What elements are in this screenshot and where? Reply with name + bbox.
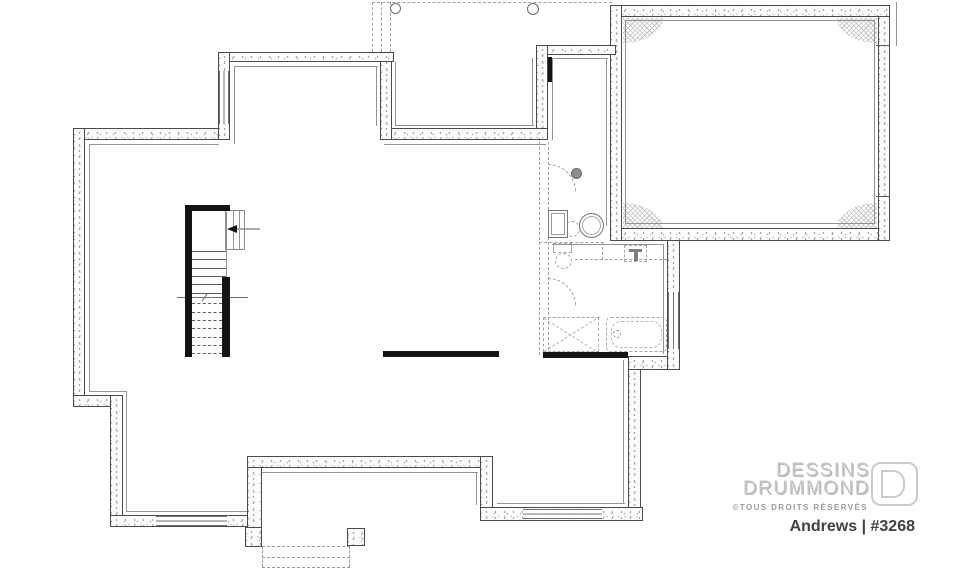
deck-outline-dashed (372, 2, 373, 52)
finish-line (234, 66, 378, 67)
drummond-logo-icon (871, 462, 918, 506)
stair-tread-hidden (192, 337, 222, 338)
future-partition (575, 259, 667, 260)
future-toilet-bowl (555, 253, 572, 269)
stair-wall-top (185, 205, 230, 211)
water-heater (579, 213, 604, 238)
foundation-wall-top-left-top-h (218, 52, 394, 62)
stair-tread-hidden (192, 345, 222, 346)
window-upper-left (219, 71, 229, 124)
deck-outline-dashed (372, 2, 612, 3)
stoop-dashed (262, 557, 350, 558)
foundation-wall-top-left-h (73, 128, 219, 140)
finish-line (395, 62, 396, 126)
finish-line (497, 503, 625, 504)
door-swing-arc (548, 278, 576, 306)
foundation-wall-nook-top-h (538, 45, 616, 55)
foundation-wall-left-lower-v (110, 395, 123, 527)
stoop-dashed (262, 567, 350, 568)
finish-line (89, 391, 126, 392)
finish-line (395, 125, 534, 126)
plan-label: Andrews | #3268 (790, 518, 915, 536)
logo-text-line2: DRUMMOND (743, 480, 870, 497)
stair-tread-hidden (192, 353, 222, 354)
foundation-wall-recess-right-v (380, 52, 392, 140)
logo-text-line1: DESSINS (776, 462, 870, 479)
furnace (548, 210, 568, 238)
foundation-wall-mid-north-h (380, 128, 548, 140)
finish-line (234, 66, 235, 144)
window-bottom-left (156, 516, 227, 526)
deck-post (390, 3, 401, 14)
future-partition (539, 142, 540, 355)
finish-line (384, 144, 546, 145)
stair-tread (192, 284, 222, 285)
basement-floor-plan: DESSINS DRUMMOND ©TOUS DROITS RÉSERVÉS A… (0, 0, 960, 569)
deck-outline-dashed (381, 2, 382, 52)
garage-inner-outline (625, 20, 875, 224)
stair-wall-left (185, 205, 192, 357)
window-bottom-right (523, 509, 602, 519)
finish-line (126, 391, 127, 512)
finish-line (376, 66, 377, 126)
finish-line (532, 58, 533, 126)
stair-tread-hidden (192, 328, 222, 329)
stair-tread (192, 276, 226, 277)
support-pier-small (347, 528, 365, 546)
stair-wall-right (222, 277, 230, 357)
foundation-wall-right-lower-v (628, 356, 641, 508)
garage-wall-left (610, 5, 622, 241)
garage-wall-right (878, 5, 890, 241)
beam-line (383, 351, 499, 357)
logo-rights: ©TOUS DROITS RÉSERVÉS (733, 503, 868, 512)
finish-line (552, 58, 608, 59)
door-panel (548, 57, 552, 82)
finish-line (552, 58, 553, 140)
finish-line (126, 511, 247, 512)
stair-tread-hidden (192, 303, 222, 304)
stair-tread-hidden (192, 312, 222, 313)
finish-line (89, 144, 219, 145)
deck-post (527, 3, 539, 15)
foundation-wall-left-v (73, 128, 85, 407)
bathtub-faucet (613, 330, 621, 338)
door-swing-arc (548, 164, 576, 192)
window-right-mid (668, 292, 679, 349)
finish-line (89, 144, 90, 391)
finish-line (251, 472, 478, 473)
finish-line (476, 472, 477, 505)
finish-line (623, 360, 624, 503)
wall-step-tick (876, 45, 890, 46)
stair-tread (192, 293, 222, 294)
floor-drain (571, 168, 582, 179)
stoop-dashed (349, 546, 350, 567)
future-toilet-tank (553, 243, 572, 253)
stair-tread (192, 251, 226, 252)
stoop-dashed (262, 546, 350, 547)
overhang-line (896, 2, 897, 46)
porch-wall-top-h (247, 456, 493, 468)
drummond-logo-door (881, 470, 905, 498)
wall-step-tick (876, 196, 890, 197)
garage-wall-bottom (610, 228, 890, 241)
stoop-dashed (262, 546, 263, 567)
stair-tread (192, 259, 226, 260)
rough-in-valve (634, 252, 638, 261)
garage-wall-top (610, 5, 890, 17)
future-partition (602, 242, 603, 260)
foundation-wall-mech-west-v (536, 45, 548, 140)
stair-tread (192, 268, 226, 269)
support-pier-left (245, 527, 262, 547)
beam-line (543, 352, 628, 358)
finish-line (606, 58, 607, 226)
stair-tread-hidden (192, 320, 222, 321)
stair-direction-arrow (227, 225, 237, 233)
